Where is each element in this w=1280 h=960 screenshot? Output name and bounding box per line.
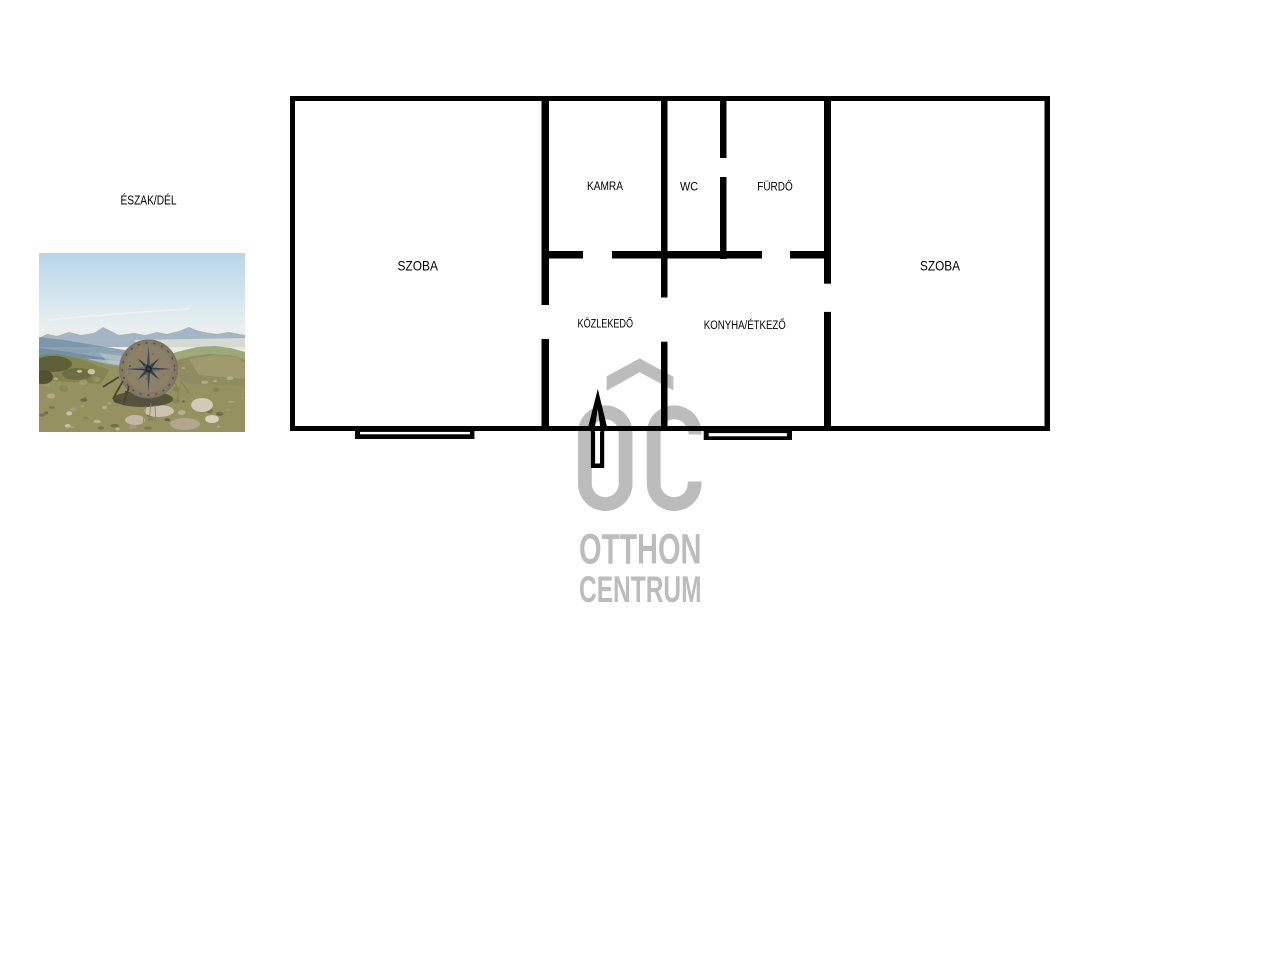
svg-text:KONYHA/ÉTKEZŐ: KONYHA/ÉTKEZŐ [704,317,786,332]
svg-text:OTTHON: OTTHON [579,525,702,573]
svg-text:CENTRUM: CENTRUM [579,568,702,610]
svg-text:ÉSZAK/DÉL: ÉSZAK/DÉL [121,192,177,207]
svg-text:KÖZLEKEDŐ: KÖZLEKEDŐ [578,316,634,331]
svg-text:KAMRA: KAMRA [587,179,624,193]
svg-text:WC: WC [680,180,698,194]
svg-text:SZOBA: SZOBA [920,259,961,274]
svg-text:FÜRDŐ: FÜRDŐ [757,179,793,194]
svg-text:SZOBA: SZOBA [397,259,438,274]
